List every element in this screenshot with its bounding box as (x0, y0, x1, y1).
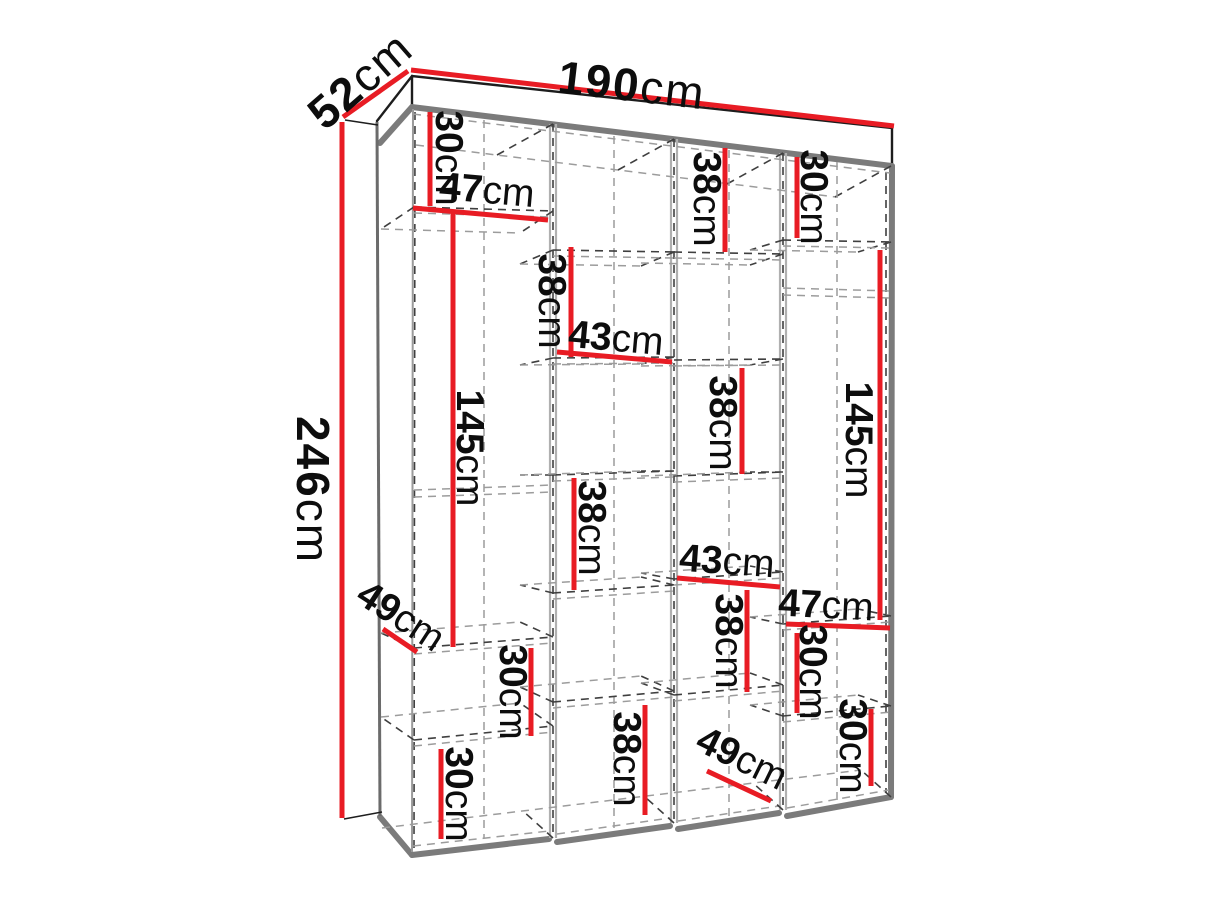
dimension-overall-height-246cm: 246cm (287, 122, 342, 818)
dimension-col4-bottom-30cm: 30cm (832, 698, 875, 793)
dimension-label: 47cm (438, 164, 537, 215)
dimension-col4-hanging-145cm: 145cm (838, 250, 881, 620)
dimension-col4-mid-30cm: 30cm (792, 624, 835, 719)
dimension-label: 30cm (438, 746, 481, 841)
side-panel-bottom-edge (380, 817, 412, 855)
dimension-col3-upper-38cm: 38cm (702, 368, 745, 474)
dimension-label: 30cm (792, 624, 835, 719)
dimension-label: 38cm (606, 711, 649, 806)
dimension-label: 49cm (349, 572, 452, 660)
dimension-col4-top-30cm: 30cm (793, 149, 836, 244)
dimension-overall-depth-52cm: 52cm (297, 21, 422, 139)
right-edge (891, 166, 892, 797)
left-wall-edge (412, 109, 413, 852)
dimension-label: 30cm (492, 644, 535, 739)
dimension-label: 145cm (449, 389, 492, 506)
side-panel-outer-edge (377, 122, 380, 816)
dimension-col1-bottom-30cm: 30cm (438, 746, 481, 841)
dimension-col2-mid-38cm: 38cm (571, 478, 614, 590)
dimension-label: 38cm (708, 593, 751, 688)
dimension-col4-width-47cm: 47cm (777, 581, 890, 629)
dimension-label: 38cm (531, 253, 574, 348)
dimension-col3-lower-38cm: 38cm (708, 590, 751, 692)
dimension-col1-hanging-145cm: 145cm (449, 213, 492, 647)
wardrobe-svg: 190cm 52cm 246cm 30cm 47cm 145cm 49cm (0, 0, 1214, 911)
dimension-col3-top-38cm: 38cm (686, 148, 729, 252)
dimension-label: 145cm (838, 381, 881, 498)
dimension-label: 38cm (571, 480, 614, 575)
dimension-label: 30cm (832, 698, 875, 793)
dimension-col3-width-43cm: 43cm (677, 536, 780, 587)
column-back-seams (484, 120, 837, 838)
dimension-label: 30cm (793, 149, 836, 244)
wardrobe-dimension-diagram: 190cm 52cm 246cm 30cm 47cm 145cm 49cm (0, 0, 1214, 911)
dimension-col2-width-43cm: 43cm (557, 312, 672, 363)
dimension-label: 38cm (702, 375, 745, 470)
dimension-col2-bottom-38cm: 38cm (606, 705, 649, 815)
dimension-col1-mid-30cm: 30cm (492, 644, 535, 739)
dimension-label: 43cm (678, 536, 776, 586)
dimension-label: 47cm (777, 581, 875, 629)
dimension-label: 246cm (287, 416, 339, 564)
dimension-label: 43cm (567, 312, 666, 363)
dimension-col1-depth-49cm: 49cm (349, 572, 452, 660)
dimension-label: 52cm (297, 21, 422, 139)
dimension-label: 38cm (686, 151, 729, 246)
